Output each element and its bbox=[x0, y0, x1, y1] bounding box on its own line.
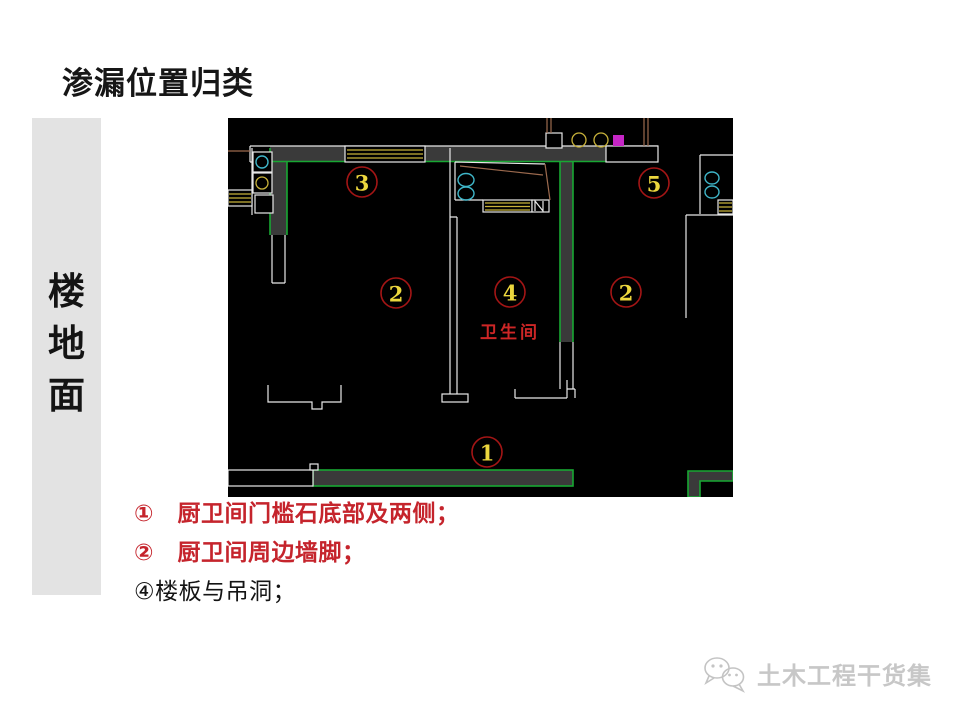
page-title: 渗漏位置归类 bbox=[62, 58, 254, 103]
bullet-item-3: ④楼板与吊洞； bbox=[134, 579, 459, 603]
leak-marker-number: 2 bbox=[619, 281, 634, 306]
floor-plan: 卫生间 352421 bbox=[228, 118, 733, 497]
leak-marker-number: 3 bbox=[355, 171, 370, 196]
sidebar-char: 面 bbox=[48, 377, 85, 414]
magenta-symbol bbox=[613, 135, 624, 146]
leak-marker-number: 2 bbox=[389, 282, 404, 307]
wall-fills bbox=[270, 146, 606, 342]
bullet-item-1: ① 厨卫间门槛石底部及两侧； bbox=[134, 501, 459, 525]
floor-plan-svg: 卫生间 352421 bbox=[228, 118, 733, 497]
presentation-slide: 渗漏位置归类 楼 地 面 bbox=[0, 0, 960, 720]
sidebar-category: 楼 地 面 bbox=[32, 118, 101, 595]
watermark-text: 土木工程干货集 bbox=[757, 656, 932, 691]
wechat-logo-icon bbox=[700, 652, 750, 694]
room-label: 卫生间 bbox=[480, 322, 540, 342]
leak-marker-number: 4 bbox=[503, 281, 518, 306]
watermark: 土木工程干货集 bbox=[700, 652, 932, 694]
bullet-item-2: ② 厨卫间周边墙脚； bbox=[134, 540, 459, 564]
sidebar-char: 楼 bbox=[48, 273, 85, 310]
leak-marker-number: 1 bbox=[480, 441, 495, 466]
sidebar-char: 地 bbox=[48, 325, 85, 362]
bullet-list: ① 厨卫间门槛石底部及两侧； ② 厨卫间周边墙脚； ④楼板与吊洞； bbox=[134, 501, 459, 618]
leak-marker-number: 5 bbox=[647, 172, 662, 197]
